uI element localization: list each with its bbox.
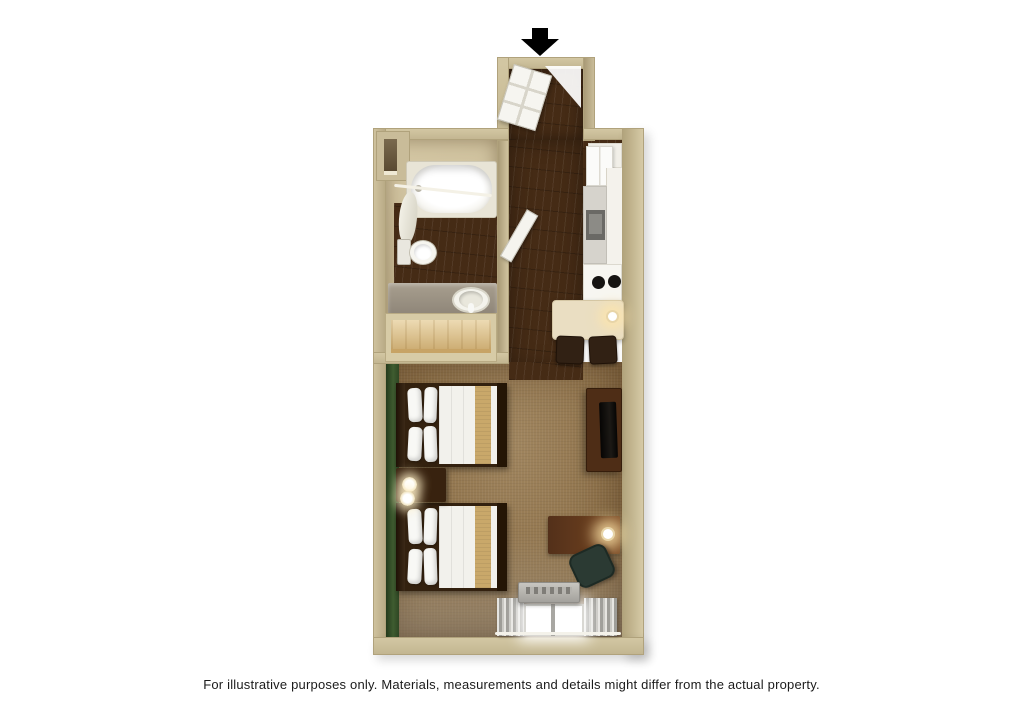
curtain-rod [495,632,621,635]
pillow [407,427,423,462]
bed-runner [475,506,491,588]
footboard [497,383,507,467]
table-lamp [606,310,619,323]
wall [373,637,644,655]
duvet [439,386,475,464]
wall [373,128,386,655]
nightstand-lamp [402,477,417,492]
ac-unit-vents [526,587,572,594]
disclaimer-caption: For illustrative purposes only. Material… [0,677,1023,692]
stove-burner [592,276,605,289]
wall [622,128,644,655]
pillow [423,508,437,545]
bed-runner [475,386,491,464]
dining-chair [556,336,585,365]
entrance-arrow-icon [521,39,559,56]
linen-niche-shelf [384,139,397,175]
curtain [497,598,524,636]
bed-2 [396,503,507,591]
pillow [407,509,423,545]
headboard [396,503,405,591]
pillow [407,388,423,423]
linen-niche-shelf-edge [384,171,397,175]
headboard [396,383,405,467]
nightstand-lamp [400,491,415,506]
pillow [423,548,437,585]
floorplan-screenshot: For illustrative purposes only. Material… [0,0,1023,716]
pillow [423,387,437,423]
dining-chair [588,335,617,364]
pillow [407,549,423,585]
footboard [497,503,507,591]
microwave-window [589,214,602,234]
kitchen-counter [606,168,622,265]
tv [599,402,618,459]
duvet [439,506,475,588]
closet-shelf [391,320,491,353]
bathroom-sink-faucet [468,303,474,313]
curtain [584,598,617,636]
bed-1 [396,383,507,467]
desk-lamp [601,527,615,541]
pillow [423,426,437,462]
hallway-floor-transition [509,362,583,380]
stove-burner [608,275,621,288]
toilet-seat [414,244,432,260]
